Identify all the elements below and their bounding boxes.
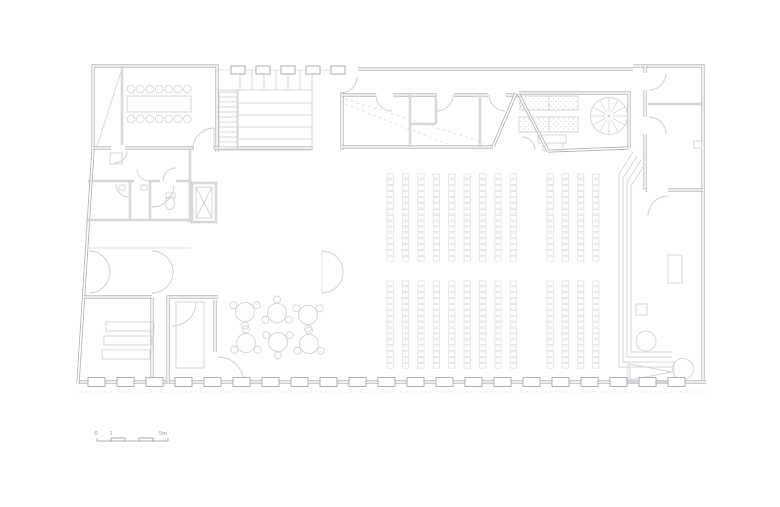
seat — [433, 233, 439, 238]
seat — [547, 311, 553, 316]
seat — [418, 299, 424, 304]
seat — [577, 293, 583, 298]
spiral-stair-tread — [593, 107, 606, 114]
seat — [495, 346, 501, 351]
seat — [433, 180, 439, 185]
seat — [577, 305, 583, 310]
seat — [562, 251, 568, 256]
seat — [387, 233, 393, 238]
seat — [402, 328, 408, 333]
seat — [495, 358, 501, 363]
seat — [387, 245, 393, 250]
seat — [464, 322, 470, 327]
seat — [464, 340, 470, 345]
seat — [418, 340, 424, 345]
seat — [547, 305, 553, 310]
seat — [547, 358, 553, 363]
seat — [495, 239, 501, 244]
cafe-table — [268, 304, 287, 323]
spiral-stair-tread — [600, 119, 607, 132]
door-gap — [647, 188, 668, 196]
seat — [593, 293, 599, 298]
seat — [547, 227, 553, 232]
cafe-chair — [317, 347, 324, 354]
seat — [577, 186, 583, 191]
seat — [433, 281, 439, 286]
spiral-stair — [591, 98, 628, 135]
seat — [495, 251, 501, 256]
seat — [449, 186, 455, 191]
seat — [593, 358, 599, 363]
seat — [495, 180, 501, 185]
seat — [479, 311, 485, 316]
seat — [479, 340, 485, 345]
cafe-chair — [253, 302, 260, 309]
door-gap — [643, 73, 651, 90]
door-arc — [89, 251, 110, 272]
lectern — [668, 255, 682, 283]
window-sill — [694, 141, 702, 148]
pilaster — [320, 378, 337, 387]
seat — [593, 328, 599, 333]
seat — [418, 221, 424, 226]
seat — [433, 334, 439, 339]
conference-table — [127, 96, 191, 112]
seat — [464, 239, 470, 244]
seat — [464, 215, 470, 220]
seat — [577, 227, 583, 232]
seat — [547, 334, 553, 339]
seat — [433, 293, 439, 298]
seat — [418, 198, 424, 203]
seat — [464, 346, 470, 351]
seat — [402, 174, 408, 179]
seat — [495, 364, 501, 369]
seat — [449, 204, 455, 209]
seat — [479, 305, 485, 310]
seat — [418, 239, 424, 244]
seat — [387, 346, 393, 351]
seat — [387, 227, 393, 232]
cafe-chair — [285, 316, 292, 323]
seat — [433, 305, 439, 310]
seat — [449, 311, 455, 316]
seat — [562, 293, 568, 298]
seat — [577, 233, 583, 238]
seat — [593, 245, 599, 250]
seat — [418, 281, 424, 286]
seat — [510, 328, 516, 333]
seat — [479, 299, 485, 304]
seat — [449, 281, 455, 286]
cafe-chair — [294, 347, 301, 354]
seat — [464, 227, 470, 232]
cafe-table — [299, 306, 318, 325]
seat — [510, 257, 516, 262]
seat — [387, 299, 393, 304]
seat — [547, 215, 553, 220]
cafe-chair — [262, 316, 269, 323]
pilaster — [175, 378, 192, 387]
seat — [577, 174, 583, 179]
seat — [402, 186, 408, 191]
meeting-chair — [174, 85, 182, 93]
seat — [577, 334, 583, 339]
seat — [387, 239, 393, 244]
seat — [464, 245, 470, 250]
seat — [402, 305, 408, 310]
seat — [510, 245, 516, 250]
seat — [593, 198, 599, 203]
seat — [402, 287, 408, 292]
pilaster — [639, 378, 656, 387]
seat — [593, 215, 599, 220]
seat — [449, 215, 455, 220]
wall-outer — [93, 66, 217, 152]
seat — [402, 334, 408, 339]
door-gap — [160, 178, 176, 184]
door-gap — [194, 144, 214, 152]
seat — [387, 328, 393, 333]
seat — [418, 352, 424, 357]
seat — [547, 287, 553, 292]
seat — [387, 316, 393, 321]
seat — [495, 293, 501, 298]
scale-bar-line — [139, 438, 153, 441]
cafe-chair — [306, 327, 313, 334]
meeting-chair — [165, 85, 173, 93]
seat — [449, 322, 455, 327]
seat — [464, 358, 470, 363]
meeting-room-furniture — [127, 85, 191, 123]
seat — [402, 311, 408, 316]
seat — [510, 299, 516, 304]
pilaster — [291, 378, 308, 387]
seat — [449, 305, 455, 310]
seat — [387, 209, 393, 214]
seat — [510, 251, 516, 256]
seat — [418, 245, 424, 250]
seat — [577, 257, 583, 262]
seat — [562, 328, 568, 333]
scale-label-5m: 5m — [159, 431, 167, 437]
door-gap — [488, 91, 506, 99]
pilaster — [523, 378, 540, 387]
seat — [464, 293, 470, 298]
seat — [402, 215, 408, 220]
seat — [449, 334, 455, 339]
seat — [402, 257, 408, 262]
seat — [547, 257, 553, 262]
seat — [479, 209, 485, 214]
seat — [562, 233, 568, 238]
seat — [479, 233, 485, 238]
door-arc — [322, 272, 343, 293]
seat — [510, 322, 516, 327]
door-gap — [643, 117, 651, 134]
entrance-lobby — [176, 302, 204, 368]
seat — [479, 328, 485, 333]
seat — [510, 281, 516, 286]
seat — [479, 257, 485, 262]
door-arc — [648, 196, 668, 216]
door-arc — [152, 251, 173, 272]
door-arc — [649, 117, 666, 134]
seat — [547, 346, 553, 351]
seat — [495, 198, 501, 203]
door-gap — [111, 145, 125, 152]
door-arc — [152, 185, 174, 207]
seat — [510, 346, 516, 351]
seat — [418, 311, 424, 316]
seat — [464, 186, 470, 191]
cafe-table — [300, 335, 319, 354]
seat — [387, 352, 393, 357]
stair-landing — [238, 90, 312, 150]
seat — [593, 174, 599, 179]
seat — [510, 209, 516, 214]
seat — [562, 215, 568, 220]
seat — [593, 192, 599, 197]
seat — [402, 239, 408, 244]
seat — [510, 334, 516, 339]
seat — [418, 305, 424, 310]
faint-line — [345, 104, 455, 147]
seat — [433, 352, 439, 357]
door-arc — [152, 272, 173, 293]
seat — [495, 340, 501, 345]
seat — [593, 233, 599, 238]
seat — [464, 192, 470, 197]
seat — [593, 257, 599, 262]
cafe-chair — [230, 302, 237, 309]
seat — [479, 293, 485, 298]
seat — [593, 340, 599, 345]
door-gap — [437, 91, 454, 99]
seat — [449, 287, 455, 292]
seat — [510, 180, 516, 185]
seat — [495, 299, 501, 304]
seat — [593, 281, 599, 286]
seat — [464, 204, 470, 209]
seat — [433, 215, 439, 220]
seat — [495, 316, 501, 321]
sink — [119, 185, 125, 190]
seat — [495, 215, 501, 220]
seat — [479, 204, 485, 209]
seat — [593, 364, 599, 369]
seat — [577, 328, 583, 333]
seat — [547, 180, 553, 185]
hall-seating-grid — [387, 174, 599, 368]
seat — [510, 287, 516, 292]
seat — [418, 334, 424, 339]
seat — [433, 364, 439, 369]
seat — [433, 227, 439, 232]
seat — [547, 328, 553, 333]
pilaster — [552, 378, 569, 387]
seat — [449, 233, 455, 238]
seat — [387, 311, 393, 316]
seat — [433, 192, 439, 197]
seat — [479, 186, 485, 191]
seat — [547, 316, 553, 321]
seat — [510, 239, 516, 244]
seat — [510, 198, 516, 203]
meeting-chair — [146, 115, 154, 123]
seat — [418, 293, 424, 298]
seat — [433, 257, 439, 262]
seat — [449, 352, 455, 357]
meeting-chair — [184, 85, 192, 93]
seat — [510, 340, 516, 345]
seat — [577, 221, 583, 226]
seat — [577, 180, 583, 185]
door-arc — [89, 272, 110, 293]
seat — [547, 198, 553, 203]
seat — [495, 281, 501, 286]
meeting-chair — [146, 85, 154, 93]
seat — [433, 239, 439, 244]
seat — [495, 328, 501, 333]
seat — [547, 186, 553, 191]
seat — [562, 281, 568, 286]
seat — [495, 287, 501, 292]
seat — [510, 233, 516, 238]
pilaster — [233, 378, 250, 387]
seat — [577, 340, 583, 345]
meeting-chair — [155, 115, 163, 123]
seat — [510, 364, 516, 369]
seat — [547, 221, 553, 226]
pilaster — [306, 66, 320, 74]
seat — [593, 311, 599, 316]
seat — [387, 174, 393, 179]
seat — [593, 346, 599, 351]
cafe-table — [237, 334, 256, 353]
seat — [562, 186, 568, 191]
scale-label-1: 1 — [109, 431, 112, 437]
seat — [433, 322, 439, 327]
seat — [418, 287, 424, 292]
wall-core — [493, 93, 516, 147]
seat — [402, 322, 408, 327]
seat — [577, 352, 583, 357]
seat — [577, 209, 583, 214]
seat — [510, 204, 516, 209]
seat — [562, 322, 568, 327]
seat — [479, 215, 485, 220]
spiral-stair-tread — [612, 107, 625, 114]
elevator — [196, 187, 212, 218]
seat — [418, 257, 424, 262]
spiral-stair-tread — [612, 118, 625, 125]
seat — [387, 215, 393, 220]
seat — [510, 186, 516, 191]
seat — [510, 311, 516, 316]
seat — [464, 311, 470, 316]
seat — [464, 299, 470, 304]
seat — [402, 340, 408, 345]
seat — [577, 364, 583, 369]
seat — [577, 316, 583, 321]
door-arc — [522, 137, 535, 150]
pilaster — [204, 378, 221, 387]
seat — [577, 358, 583, 363]
seat — [387, 186, 393, 191]
cafe-chair — [231, 346, 238, 353]
seat — [562, 192, 568, 197]
stair-flight — [219, 92, 237, 150]
seat — [402, 299, 408, 304]
seat — [547, 209, 553, 214]
seat — [479, 316, 485, 321]
seat — [464, 198, 470, 203]
seat — [495, 257, 501, 262]
seat — [593, 322, 599, 327]
seat — [387, 334, 393, 339]
seat — [479, 281, 485, 286]
spiral-stair-tread — [611, 100, 618, 113]
seat — [593, 204, 599, 209]
seat — [402, 180, 408, 185]
seat — [547, 352, 553, 357]
seat — [449, 358, 455, 363]
seat — [387, 287, 393, 292]
seat — [562, 174, 568, 179]
seat — [433, 245, 439, 250]
seat — [547, 233, 553, 238]
pilaster — [581, 378, 598, 387]
seat — [433, 174, 439, 179]
seat — [577, 287, 583, 292]
seat — [464, 209, 470, 214]
seat — [387, 322, 393, 327]
seat — [479, 198, 485, 203]
seat — [510, 174, 516, 179]
pilaster — [407, 378, 424, 387]
seat — [562, 257, 568, 262]
seat — [464, 364, 470, 369]
pilaster — [494, 378, 511, 387]
seat — [402, 251, 408, 256]
seat — [562, 305, 568, 310]
seat — [547, 281, 553, 286]
seat — [402, 221, 408, 226]
seat — [433, 328, 439, 333]
meeting-chair — [137, 115, 145, 123]
pilaster — [378, 378, 395, 387]
seat — [402, 281, 408, 286]
seat — [495, 352, 501, 357]
meeting-chair — [155, 85, 163, 93]
seat — [464, 257, 470, 262]
seat — [433, 299, 439, 304]
seat — [449, 299, 455, 304]
meeting-chair — [165, 115, 173, 123]
seat — [479, 221, 485, 226]
seat — [449, 198, 455, 203]
seat — [418, 251, 424, 256]
floor-plan-drawing: 0 1 5m — [0, 0, 780, 507]
seat — [464, 305, 470, 310]
seat — [418, 316, 424, 321]
seat — [418, 364, 424, 369]
seat — [418, 180, 424, 185]
pilaster — [610, 378, 627, 387]
floor-plan-canvas: 0 1 5m — [0, 0, 780, 507]
cafe-chair — [274, 296, 281, 303]
